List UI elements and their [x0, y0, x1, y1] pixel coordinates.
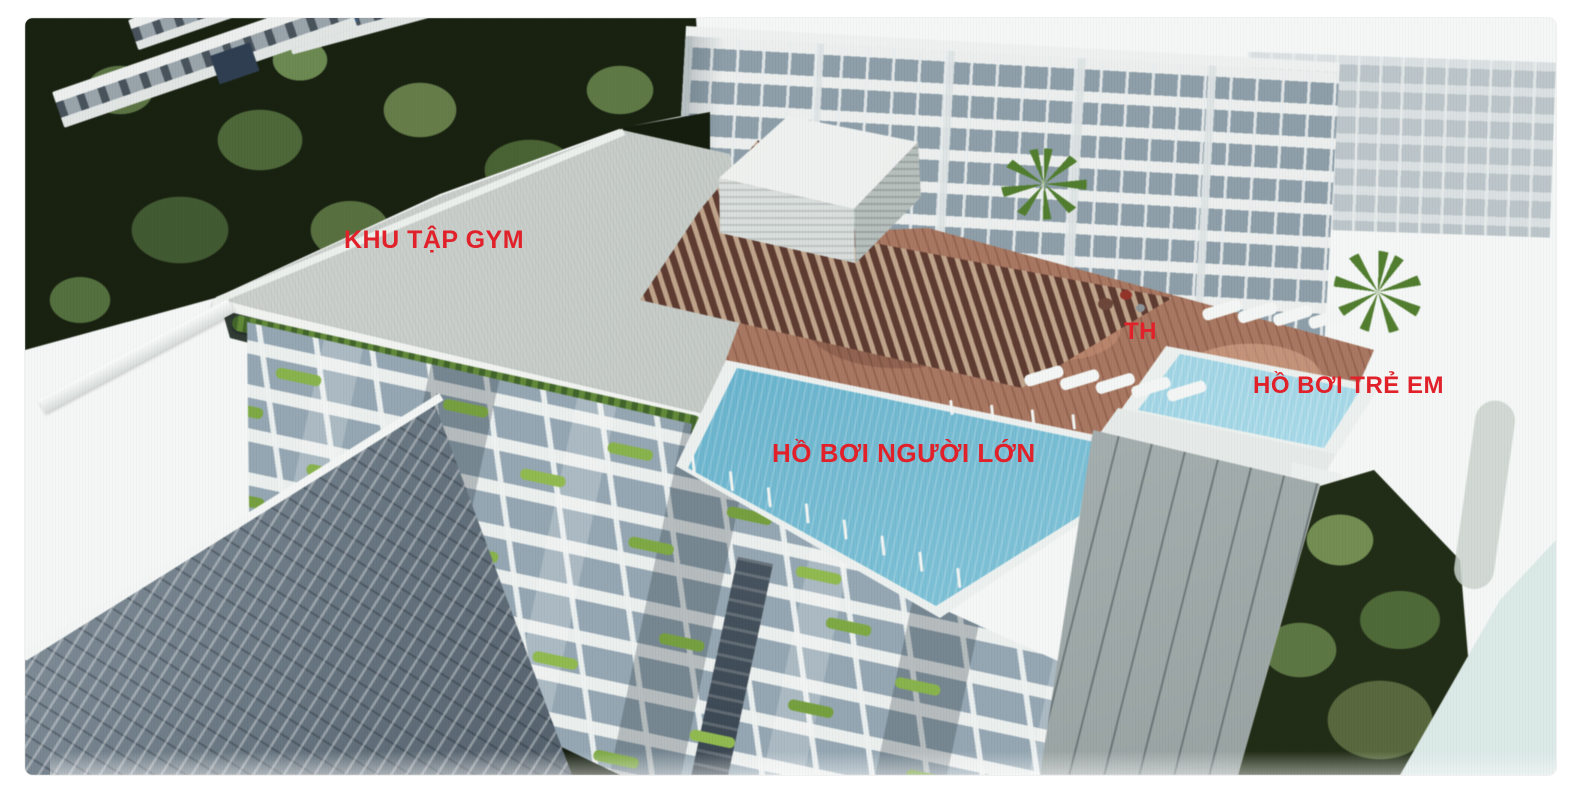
label-kids-pool: HỒ BƠI TRẺ EM: [1253, 372, 1444, 400]
label-adult-pool: HỒ BƠI NGƯỜI LỚN: [772, 438, 1036, 469]
label-gym-area: KHU TẬP GYM: [344, 226, 524, 255]
label-layer: KHU TẬP GYM TH HỒ BƠI TRẺ EM HỒ BƠI NGƯỜ…: [25, 18, 1556, 775]
rendering-page: KHU TẬP GYM TH HỒ BƠI TRẺ EM HỒ BƠI NGƯỜ…: [0, 0, 1580, 800]
rooftop-aerial-rendering: KHU TẬP GYM TH HỒ BƠI TRẺ EM HỒ BƠI NGƯỜ…: [25, 18, 1556, 775]
label-terrace: TH: [1124, 318, 1157, 346]
bottom-fade: [50, 751, 1556, 775]
